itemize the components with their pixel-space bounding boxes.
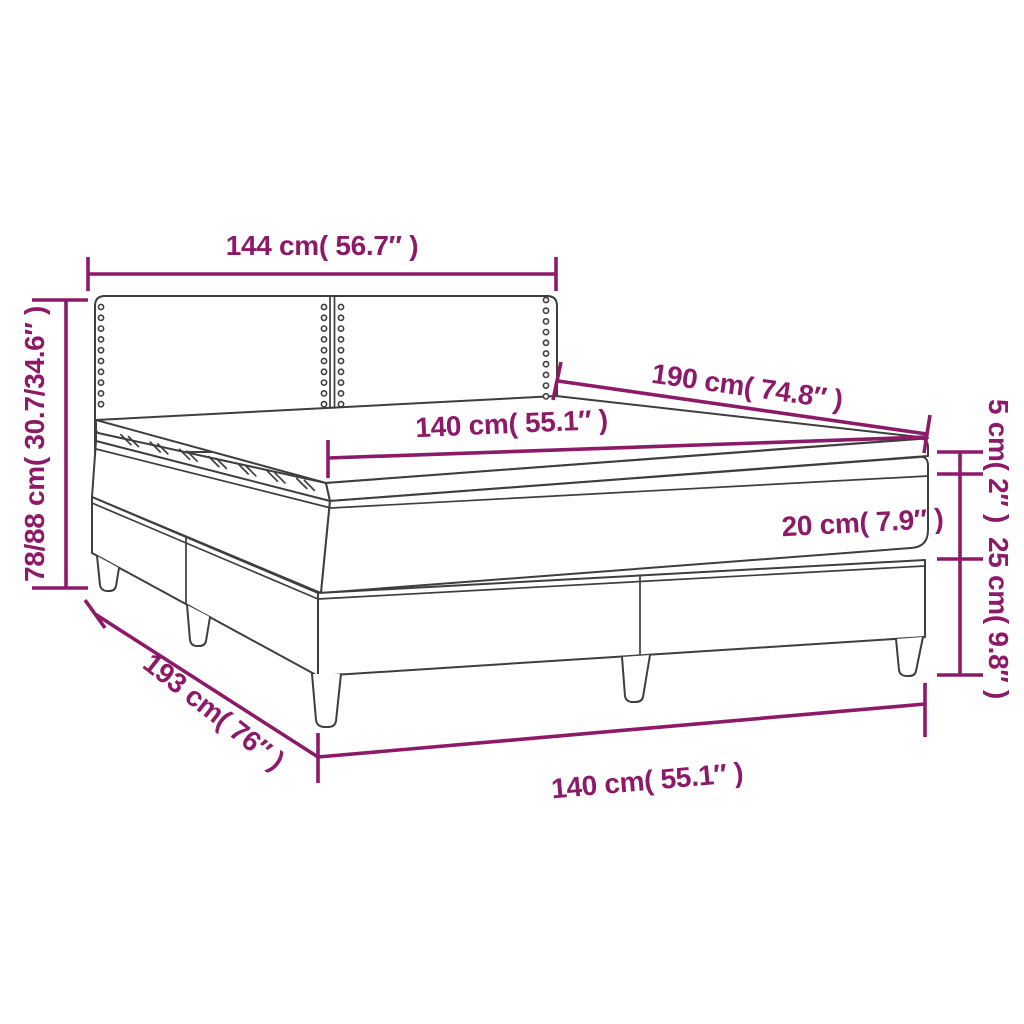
dim-label-topper-thickness: 5 cm( 2″ ) — [983, 399, 1014, 523]
diagram-canvas: 144 cm( 56.7″ ) 78/88 cm( 30.7/34.6″ ) 1… — [0, 0, 1024, 1024]
dim-line-base-width — [318, 704, 925, 757]
dim-label-total-height: 78/88 cm( 30.7/34.6″ ) — [19, 306, 50, 582]
dim-tick — [85, 600, 105, 628]
dim-label-base-width: 140 cm( 55.1″ ) — [550, 757, 745, 805]
dimension-total-height: 78/88 cm( 30.7/34.6″ ) — [19, 300, 88, 588]
leg-foot-middle — [622, 655, 650, 702]
leg-foot-right — [896, 637, 923, 676]
dim-label-base-length: 193 cm( 76″ ) — [137, 647, 290, 776]
leg-foot-left — [312, 674, 341, 727]
bed-dimension-diagram: 144 cm( 56.7″ ) 78/88 cm( 30.7/34.6″ ) 1… — [0, 0, 1024, 1024]
dim-label-base-height: 25 cm( 9.8″ ) — [983, 537, 1014, 699]
dimension-base-width: 140 cm( 55.1″ ) — [318, 683, 925, 804]
dimension-headboard-width: 144 cm( 56.7″ ) — [88, 230, 556, 291]
dim-label-headboard-width: 144 cm( 56.7″ ) — [226, 230, 419, 261]
